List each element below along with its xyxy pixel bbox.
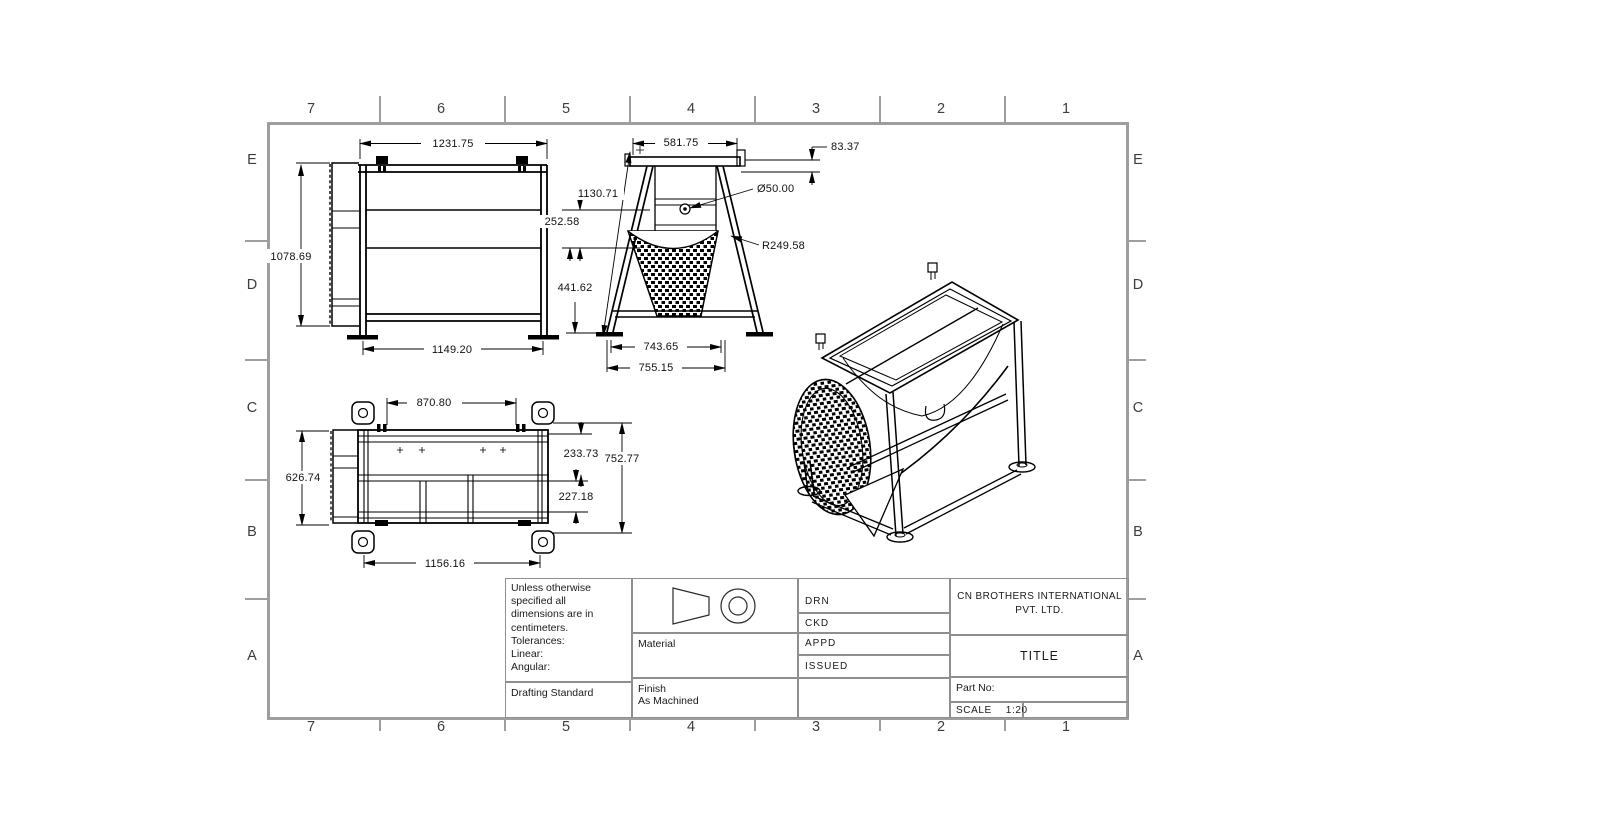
dim-side-width-top: 581.75 xyxy=(664,137,699,149)
front-view-structure xyxy=(330,156,559,340)
zone-col-label: 1 xyxy=(1054,719,1078,735)
zone-row-label: C xyxy=(240,400,264,416)
zone-tick xyxy=(1004,717,1006,731)
zone-tick xyxy=(1126,598,1146,600)
zone-col-label: 3 xyxy=(804,101,828,117)
dim-front-height: 1078.69 xyxy=(270,251,311,263)
approval-row-issued: ISSUED xyxy=(798,655,950,678)
drafting-standard-cell: Drafting Standard xyxy=(505,682,632,718)
zone-row-label: B xyxy=(1126,524,1150,540)
zone-row-label: E xyxy=(1126,152,1150,168)
front-view-dimensions xyxy=(266,136,547,356)
part-no-cell: Part No: xyxy=(950,677,1129,702)
finish-label: Finish xyxy=(638,683,797,695)
zone-tick xyxy=(629,96,631,124)
dim-top-upper-right: 233.73 xyxy=(564,448,599,460)
scale-cell: SCALE1:20 xyxy=(950,702,1023,718)
dim-top-width-bottom: 1156.16 xyxy=(425,558,465,570)
dim-side-lower: 441.62 xyxy=(558,282,593,294)
scale-label: SCALE xyxy=(956,705,992,716)
company-name-line1: CN BROTHERS INTERNATIONAL xyxy=(951,590,1128,604)
zone-col-label: 5 xyxy=(554,101,578,117)
zone-tick xyxy=(1126,359,1146,361)
dim-side-upper: 252.58 xyxy=(545,216,580,228)
zone-row-label: A xyxy=(1126,648,1150,664)
dim-side-shaft-diameter: Ø50.00 xyxy=(757,183,794,195)
zone-row-label: C xyxy=(1126,400,1150,416)
isometric-structure xyxy=(785,263,1035,542)
dim-top-depth-left: 626.74 xyxy=(286,472,321,484)
dim-side-overall-width: 755.15 xyxy=(639,362,674,374)
zone-row-label: B xyxy=(240,524,264,540)
zone-tick xyxy=(754,96,756,124)
drawing-title: TITLE xyxy=(950,635,1129,677)
zone-col-label: 4 xyxy=(679,719,703,735)
company-name-line2: PVT. LTD. xyxy=(951,604,1128,618)
title-block: Unless otherwise specified all dimension… xyxy=(505,578,1129,718)
third-angle-projection-icon xyxy=(633,579,797,632)
zone-tick xyxy=(754,717,756,731)
isometric-view xyxy=(750,250,1055,550)
zone-tick xyxy=(1126,240,1146,242)
zone-col-label: 7 xyxy=(299,101,323,117)
zone-tick xyxy=(629,717,631,731)
zone-col-label: 7 xyxy=(299,719,323,735)
front-view: 1231.75 1078.69 1149.20 xyxy=(264,125,574,370)
zone-tick xyxy=(879,96,881,124)
zone-col-label: 5 xyxy=(554,719,578,735)
dim-top-depth-right: 752.77 xyxy=(605,453,640,465)
zone-col-label: 2 xyxy=(929,719,953,735)
zone-tick xyxy=(504,717,506,731)
zone-tick xyxy=(1126,479,1146,481)
approval-row-appd: APPD xyxy=(798,633,950,655)
dim-front-width-top: 1231.75 xyxy=(432,138,473,150)
zone-row-label: E xyxy=(240,152,264,168)
dim-front-width-bottom: 1149.20 xyxy=(432,344,472,356)
zone-col-label: 6 xyxy=(429,719,453,735)
zone-col-label: 1 xyxy=(1054,101,1078,117)
finish-value: As Machined xyxy=(638,695,797,707)
approval-row-ckd: CKD xyxy=(798,613,950,633)
scale-empty-cell xyxy=(1023,702,1129,718)
zone-row-label: D xyxy=(1126,277,1150,293)
cad-drawing-sheet: { "sheet": { "zone_columns": ["7", "6", … xyxy=(0,0,1610,833)
projection-symbol-cell xyxy=(632,578,798,633)
zone-tick xyxy=(1004,96,1006,124)
general-notes: Unless otherwise specified all dimension… xyxy=(505,578,632,682)
approval-row-drn: DRN xyxy=(798,578,950,613)
dim-side-leg-slant: 1130.71 xyxy=(578,188,618,200)
dim-top-lower-right: 227.18 xyxy=(559,491,594,503)
finish-cell: Finish As Machined xyxy=(632,678,798,718)
zone-col-label: 4 xyxy=(679,101,703,117)
zone-tick xyxy=(879,717,881,731)
dim-top-clamp-span: 870.80 xyxy=(417,397,452,409)
clamp-mark xyxy=(376,156,528,172)
zone-row-label: A xyxy=(240,648,264,664)
top-view-dimensions xyxy=(277,396,645,570)
zone-col-label: 3 xyxy=(804,719,828,735)
material-cell: Material xyxy=(632,633,798,678)
zone-tick xyxy=(379,96,381,124)
zone-tick xyxy=(504,96,506,124)
dim-side-offset: 83.37 xyxy=(831,141,860,153)
zone-col-label: 6 xyxy=(429,101,453,117)
zone-col-label: 2 xyxy=(929,101,953,117)
dim-side-feet-span: 743.65 xyxy=(644,341,679,353)
zone-tick xyxy=(245,598,269,600)
approval-empty-cell xyxy=(798,678,950,718)
top-view: 870.80 626.74 752.77 233.73 227.18 1156.… xyxy=(270,378,645,583)
zone-tick xyxy=(245,479,269,481)
zone-row-label: D xyxy=(240,277,264,293)
company-cell: CN BROTHERS INTERNATIONAL PVT. LTD. xyxy=(950,578,1129,635)
zone-tick xyxy=(379,717,381,731)
top-view-structure xyxy=(331,402,554,553)
